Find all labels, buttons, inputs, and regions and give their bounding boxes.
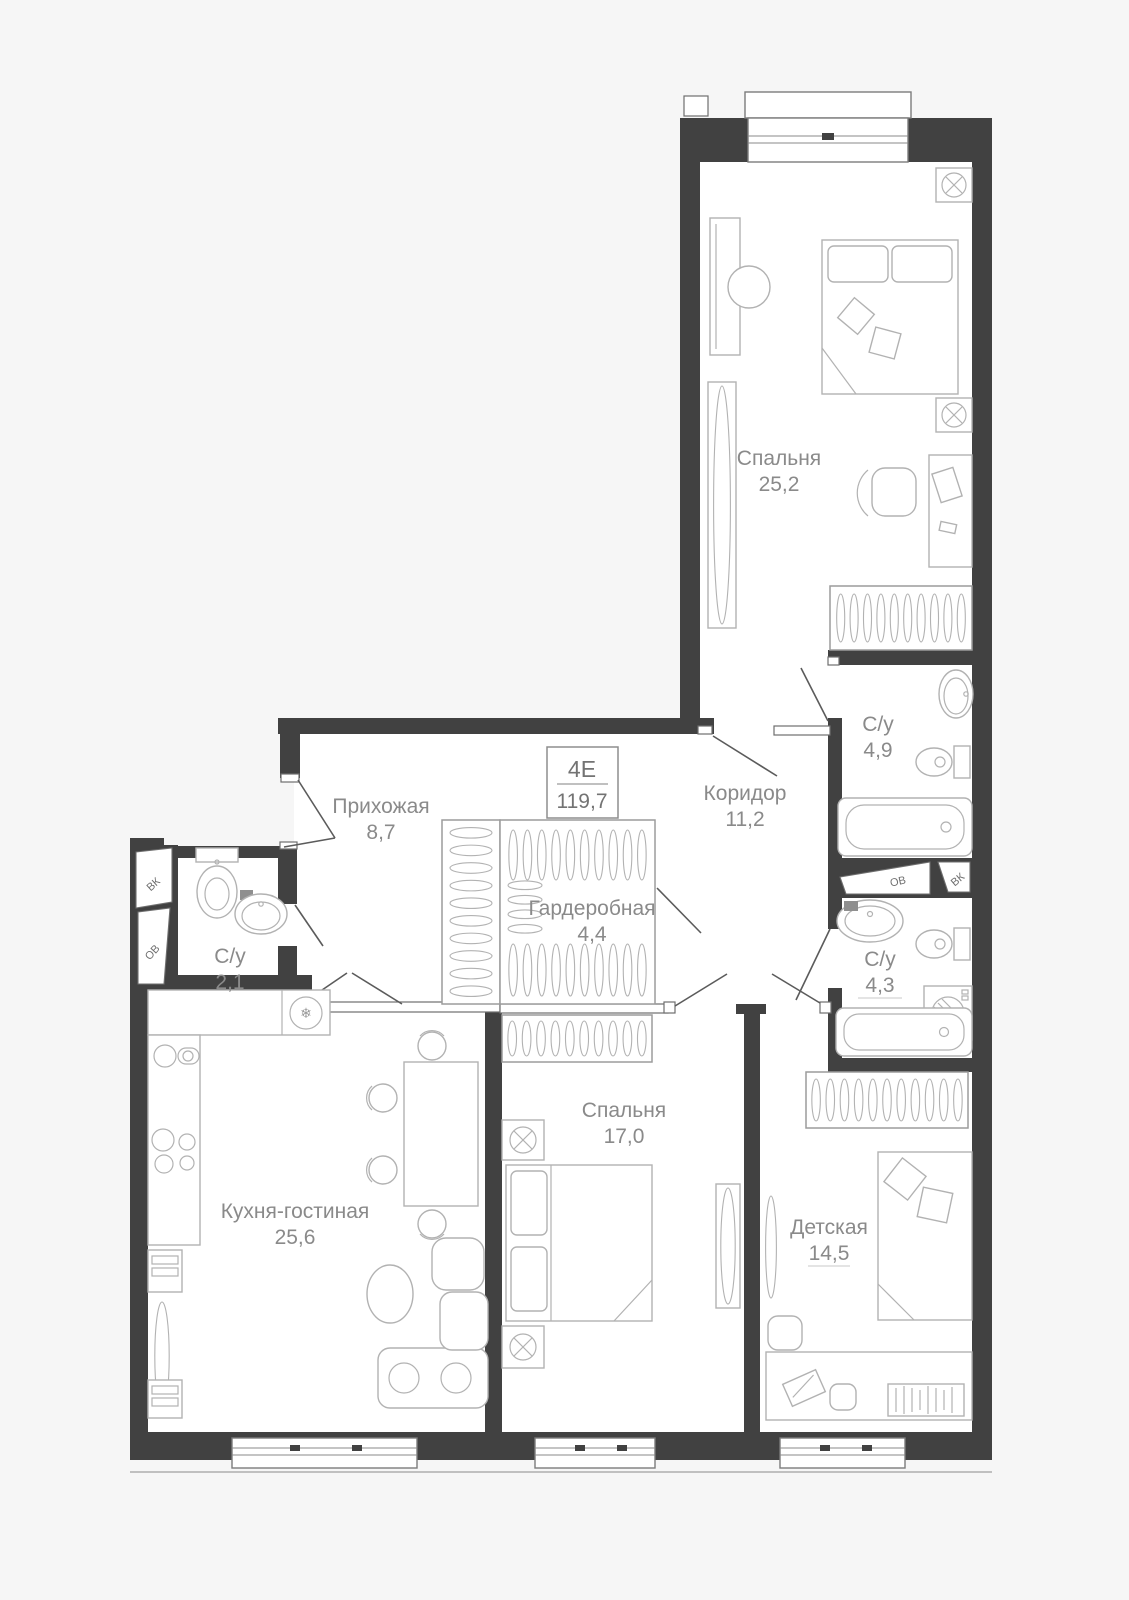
sink-icon (837, 900, 903, 942)
window-kitchen (232, 1438, 417, 1468)
pouf-icon (768, 1316, 802, 1350)
chair-icon (830, 1384, 856, 1410)
unit-type-label: 4Е (568, 756, 596, 782)
pillow-icon (917, 1187, 953, 1223)
nightstand-icon (502, 1326, 544, 1368)
toilet-icon (916, 746, 970, 778)
room-label-kids-area: 14,5 (809, 1242, 850, 1265)
snowflake-icon: ❄ (300, 1005, 312, 1021)
room-label-wardrobe-name: Гардеробная (528, 897, 655, 920)
room-label-hallway-area: 8,7 (366, 821, 395, 844)
room-label-kitchen-name: Кухня-гостиная (221, 1200, 370, 1223)
room-label-bath1-name: С/у (862, 713, 894, 736)
window-kids (780, 1438, 905, 1468)
room-label-bath1-area: 4,9 (863, 739, 892, 762)
room-label-kids-name: Детская (790, 1216, 868, 1239)
pillow-icon (511, 1247, 547, 1311)
balcony-sill (745, 92, 911, 118)
floor-plan-page: ВК ОВ ОВ ВК (0, 0, 1129, 1600)
room-label-corridor-area: 11,2 (725, 808, 764, 831)
books-icon (888, 1384, 964, 1416)
radiator-icon (721, 1188, 735, 1304)
pillow-icon (511, 1171, 547, 1235)
unit-total-area: 119,7 (557, 790, 608, 813)
chair-icon (728, 266, 770, 308)
room-label-bedroom1-area: 25,2 (759, 473, 800, 496)
pillow-icon (828, 246, 888, 282)
bathtub-icon (836, 1008, 972, 1056)
cushion-icon (869, 327, 901, 359)
room-label-kitchen-area: 25,6 (275, 1226, 316, 1249)
toilet-icon (196, 848, 238, 918)
facade-notch (684, 96, 708, 116)
sink-icon (939, 670, 973, 718)
armchair-icon (432, 1238, 484, 1290)
ottoman-icon (367, 1265, 413, 1323)
room-label-corridor-name: Коридор (704, 782, 787, 805)
room-label-bath2-name: С/у (864, 948, 896, 971)
window-bedroom2 (535, 1438, 655, 1468)
toilet-icon (916, 928, 970, 960)
room-label-bedroom2-name: Спальня (582, 1099, 666, 1122)
cabinet-icon (148, 1380, 182, 1418)
ac-unit-icon (936, 168, 972, 202)
nightstand-icon (936, 398, 972, 432)
dining-table-icon (404, 1062, 478, 1206)
room-label-bath3-name: С/у (214, 945, 246, 968)
floor-plan-drawing: ВК ОВ ОВ ВК (0, 0, 1129, 1600)
radiator-icon (766, 1196, 777, 1298)
tv-stand-icon (148, 1250, 182, 1292)
room-label-bath2-area: 4,3 (865, 974, 894, 997)
bathtub-icon (838, 798, 972, 856)
room-label-bedroom2-area: 17,0 (604, 1125, 645, 1148)
room-label-bath3-area: 2,1 (215, 971, 244, 994)
room-label-hallway-name: Прихожая (332, 795, 429, 818)
unit-info-box: 4Е 119,7 (547, 747, 618, 818)
nightstand-icon (502, 1120, 544, 1160)
room-label-wardrobe-area: 4,4 (577, 923, 607, 946)
room-label-bedroom1-name: Спальня (737, 447, 821, 470)
pillow-icon (892, 246, 952, 282)
